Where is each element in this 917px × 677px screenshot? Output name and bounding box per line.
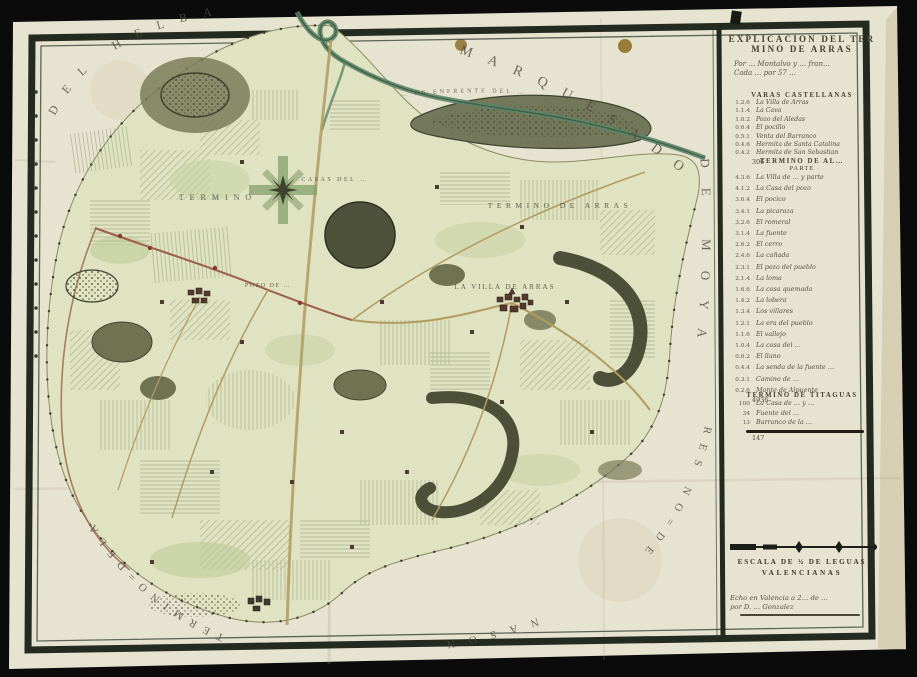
photographed-map: MARQUESADO DEL HELBA DE MOYA … DE ENFREN… <box>0 0 917 677</box>
place-label: LA VILLA DE ARRAS <box>455 283 556 291</box>
scale-block: ESCALA DE ¾ DE LEGUAS VALENCIANAS <box>726 540 878 577</box>
row-num: 0.5.1 <box>726 134 756 141</box>
row-num: 1.0.2 <box>726 117 756 124</box>
place-label: TERMINO <box>179 193 257 202</box>
row-num: 1.4.2 <box>726 296 756 306</box>
row-name: El vallejo <box>756 329 878 339</box>
row-num: 2.4.6 <box>726 251 756 261</box>
section-casas-header: VARAS CASTELLANAS <box>726 92 878 99</box>
row-name: La casa quemada <box>756 284 878 294</box>
row-name: Hermita de Santa Catalina <box>756 141 878 148</box>
section-termino-al-header: TERMINO DE AL… <box>726 158 878 165</box>
place-label: CASAS DEL … <box>301 177 368 183</box>
legend-panel: EXPLICACION DEL TER MINO DE ARRAS Por … … <box>726 34 878 640</box>
row-name: El cerro <box>756 239 878 249</box>
row-num: 0.4.2 <box>726 150 756 157</box>
row-num: 13 <box>726 419 756 428</box>
row-name: Venta del Barranco <box>756 133 878 140</box>
row-name: La senda de la fuente … <box>756 362 878 372</box>
legend-title-line2: MINO DE ARRAS <box>726 44 878 54</box>
scale-label-line1: ESCALA DE ¾ DE LEGUAS <box>726 558 878 566</box>
row-num: 0.3.1 <box>726 375 756 385</box>
row-name: Pozo del Aledas <box>756 116 878 123</box>
scale-bar <box>727 540 877 554</box>
row-num: 1.2.6 <box>726 100 756 107</box>
total-rule <box>746 430 864 433</box>
row-name: La era del pueblo <box>756 318 878 328</box>
row-num: 0.6.2 <box>726 352 756 362</box>
legend-section-termino-al: TERMINO DE AL… PARTE 4.3.6La Villa de … … <box>726 158 878 404</box>
row-name: Camino de … <box>756 374 878 384</box>
row-num: 0.6.4 <box>726 125 756 132</box>
wax-stain <box>618 39 632 53</box>
row-name: El romeral <box>756 217 878 227</box>
scale-label-line2: VALENCIANAS <box>726 569 878 577</box>
row-num: 1.1.4 <box>726 108 756 115</box>
row-num: 3.1.4 <box>726 229 756 239</box>
row-num: 1.3.4 <box>726 307 756 317</box>
row-num: 4.1.2 <box>726 184 756 194</box>
row-name: El pozo del pueblo <box>756 262 878 272</box>
row-num: 2.6.2 <box>726 240 756 250</box>
signature-block: Echo en Valencia a 2… de … por D. … Gonz… <box>726 594 882 616</box>
signature-flourish <box>740 614 860 616</box>
row-name: Hermita de San Sebastian <box>756 149 878 156</box>
row-num: 1.6.6 <box>726 285 756 295</box>
row-num: 3.4.1 <box>726 207 756 217</box>
row-name: El llano <box>756 351 878 361</box>
row-name: La Casa del pozo <box>756 183 878 193</box>
signature-line1: Echo en Valencia a 2… de … <box>730 594 882 603</box>
row-name: La Casa de … y … <box>756 399 878 408</box>
row-name: La Cava <box>756 107 878 114</box>
row-name: El pocico <box>756 194 878 204</box>
section-titaguas-total: 147 <box>752 434 878 442</box>
row-name: La casa del … <box>756 340 878 350</box>
row-num: 0.4.4 <box>726 363 756 373</box>
place-label: POZO DE … <box>245 283 291 289</box>
dark-hill <box>325 202 395 268</box>
place-label: TERMINO DE ARRAS <box>488 201 633 210</box>
legend-title: EXPLICACION DEL TER MINO DE ARRAS <box>726 34 878 54</box>
row-num: 4.3.6 <box>726 173 756 183</box>
row-name: La cañada <box>756 250 878 260</box>
legend-title-line1: EXPLICACION DEL TER <box>726 34 878 44</box>
row-num: 1.0.4 <box>726 341 756 351</box>
row-num: 1.1.6 <box>726 330 756 340</box>
legend-hand-note: Por … Montalvo y … fran… Cada … por 57 … <box>726 60 886 77</box>
section-titaguas-header: TERMINO DE TITAGUAS <box>726 392 878 399</box>
row-num: 3.6.4 <box>726 195 756 205</box>
row-name: La lobera <box>756 295 878 305</box>
legend-section-casas: VARAS CASTELLANAS 1.2.6La Villa de Arras… <box>726 92 878 166</box>
row-num: 2.1.4 <box>726 274 756 284</box>
row-name: La loma <box>756 273 878 283</box>
row-num: 100 <box>726 400 756 409</box>
hand-note-line2: Cada … por 57 … <box>734 69 886 78</box>
row-name: La picaraza <box>756 206 878 216</box>
row-name: Fuente del … <box>756 409 878 418</box>
row-num: 0.4.6 <box>726 142 756 149</box>
row-name: Los villares <box>756 306 878 316</box>
ink-mark <box>730 10 742 24</box>
row-name: El pocillo <box>756 124 878 131</box>
row-name: Barranco de la … <box>756 418 878 427</box>
row-num: 1.2.1 <box>726 319 756 329</box>
row-name: La fuente <box>756 228 878 238</box>
row-num: 34 <box>726 410 756 419</box>
hand-note-line1: Por … Montalvo y … fran… <box>734 60 886 69</box>
section-termino-al-subheader: PARTE <box>726 165 878 172</box>
row-num: 3.2.6 <box>726 218 756 228</box>
row-num: 2.3.1 <box>726 263 756 273</box>
legend-section-titaguas: TERMINO DE TITAGUAS 100La Casa de … y … … <box>726 392 878 442</box>
signature-line2: por D. … Gonzalez <box>730 603 882 612</box>
row-name: La Villa de Arras <box>756 99 878 106</box>
row-name: La Villa de … y parte <box>756 172 878 182</box>
